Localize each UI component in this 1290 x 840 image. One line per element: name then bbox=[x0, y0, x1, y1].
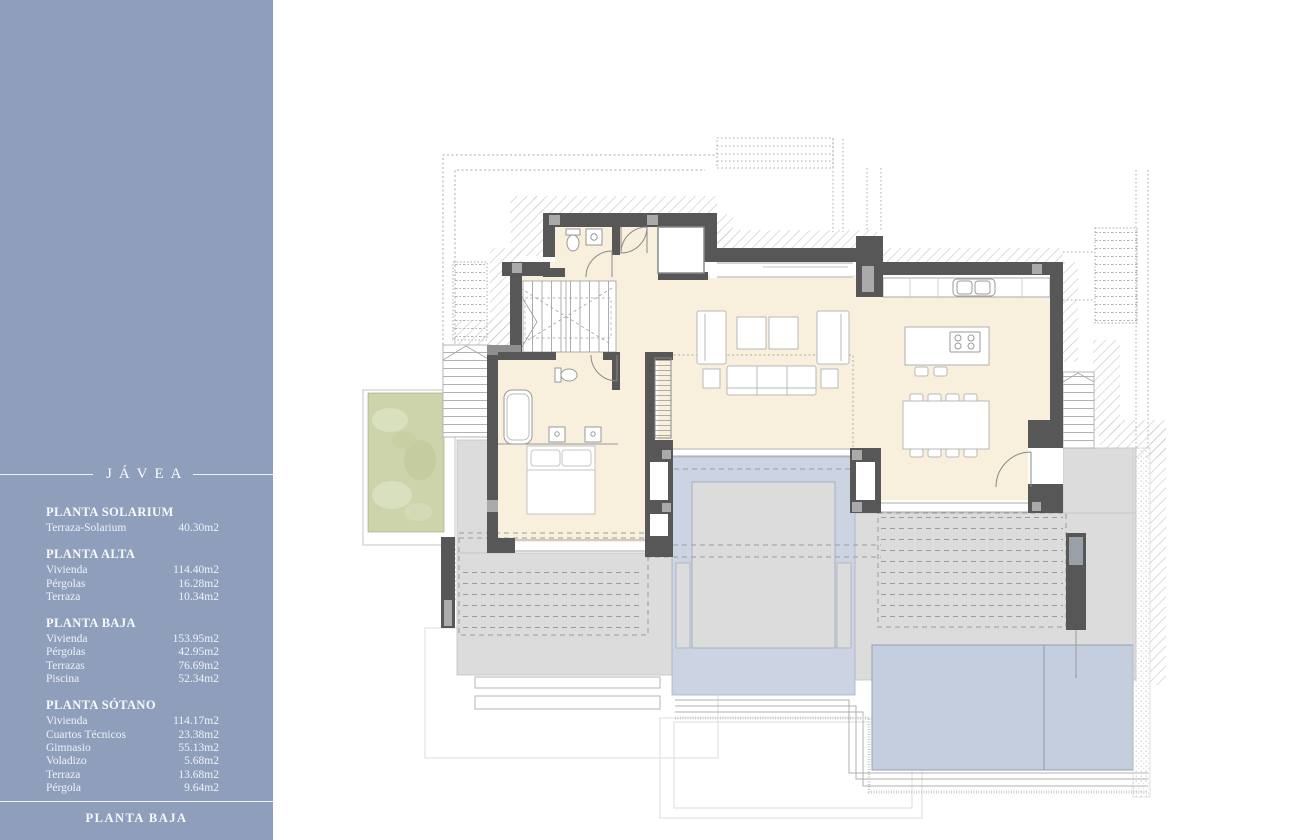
area-row: Terrazas76.69m2 bbox=[46, 660, 219, 673]
area-label: Gimnasio bbox=[46, 742, 91, 755]
area-label: Terraza-Solarium bbox=[46, 522, 126, 535]
stool bbox=[934, 367, 947, 376]
area-label: Vivienda bbox=[46, 564, 87, 577]
area-value: 114.40m2 bbox=[173, 564, 219, 577]
upper-stair-dotted-right bbox=[1095, 228, 1137, 323]
coffee-table bbox=[737, 317, 766, 349]
area-row: Vivienda114.17m2 bbox=[46, 715, 219, 728]
area-value: 16.28m2 bbox=[178, 578, 219, 591]
bed bbox=[527, 446, 595, 514]
stove bbox=[950, 332, 980, 352]
side-table bbox=[821, 369, 838, 388]
dining-set bbox=[903, 394, 989, 457]
area-value: 40.30m2 bbox=[178, 522, 219, 535]
area-row: Terraza13.68m2 bbox=[46, 769, 219, 782]
armchair bbox=[697, 311, 726, 364]
footer-rule bbox=[0, 801, 273, 802]
area-label: Cuartos Técnicos bbox=[46, 729, 126, 742]
pool-deck-strip bbox=[1133, 448, 1150, 797]
section-header: PLANTA ALTA bbox=[46, 547, 219, 562]
area-value: 23.38m2 bbox=[178, 729, 219, 742]
area-value: 153.95m2 bbox=[173, 633, 219, 646]
area-label: Terraza bbox=[46, 591, 80, 604]
terrace-east-upper bbox=[1063, 448, 1136, 513]
area-row: Terraza10.34m2 bbox=[46, 591, 219, 604]
area-value: 10.34m2 bbox=[178, 591, 219, 604]
area-value: 9.64m2 bbox=[184, 782, 219, 795]
water-patio bbox=[672, 457, 855, 695]
area-label: Pérgola bbox=[46, 782, 81, 795]
kitchen-counter bbox=[883, 278, 1050, 297]
area-label: Piscina bbox=[46, 673, 79, 686]
area-section-2: PLANTA BAJAVivienda153.95m2Pérgolas42.95… bbox=[46, 616, 219, 686]
area-value: 42.95m2 bbox=[178, 646, 219, 659]
area-value: 13.68m2 bbox=[178, 769, 219, 782]
side-table bbox=[703, 369, 720, 388]
section-header: PLANTA SÓTANO bbox=[46, 698, 219, 713]
area-value: 76.69m2 bbox=[178, 660, 219, 673]
area-value: 5.68m2 bbox=[184, 755, 219, 768]
sofa bbox=[727, 366, 816, 395]
current-floor-label: PLANTA BAJA bbox=[0, 811, 273, 826]
section-header: PLANTA SOLARIUM bbox=[46, 505, 219, 520]
area-row: Piscina52.34m2 bbox=[46, 673, 219, 686]
armchair bbox=[817, 311, 849, 364]
brochure-page: JÁVEA PLANTA SOLARIUMTerraza-Solarium40.… bbox=[0, 0, 1290, 840]
area-row: Cuartos Técnicos23.38m2 bbox=[46, 729, 219, 742]
area-value: 52.34m2 bbox=[178, 673, 219, 686]
interior-staircase bbox=[516, 281, 616, 352]
garden-planter bbox=[363, 390, 455, 545]
area-row: Terraza-Solarium40.30m2 bbox=[46, 522, 219, 535]
info-sidebar: JÁVEA PLANTA SOLARIUMTerraza-Solarium40.… bbox=[0, 0, 273, 840]
area-row: Vivienda153.95m2 bbox=[46, 633, 219, 646]
coffee-table bbox=[769, 317, 798, 349]
dining-table bbox=[903, 401, 989, 449]
area-label: Pérgolas bbox=[46, 578, 85, 591]
area-row: Pérgolas16.28m2 bbox=[46, 578, 219, 591]
area-label: Terraza bbox=[46, 769, 80, 782]
toilet bbox=[566, 229, 580, 251]
area-label: Pérgolas bbox=[46, 646, 85, 659]
section-header: PLANTA BAJA bbox=[46, 616, 219, 631]
area-label: Voladizo bbox=[46, 755, 87, 768]
area-row: Voladizo5.68m2 bbox=[46, 755, 219, 768]
area-row: Pérgolas42.95m2 bbox=[46, 646, 219, 659]
area-value: 55.13m2 bbox=[178, 742, 219, 755]
area-section-3: PLANTA SÓTANOVivienda114.17m2Cuartos Téc… bbox=[46, 698, 219, 795]
bathtub bbox=[504, 390, 532, 444]
area-section-0: PLANTA SOLARIUMTerraza-Solarium40.30m2 bbox=[46, 505, 219, 535]
east-stair bbox=[1063, 372, 1094, 448]
area-row: Pérgola9.64m2 bbox=[46, 782, 219, 795]
area-value: 114.17m2 bbox=[173, 715, 219, 728]
garden-stair bbox=[443, 345, 490, 437]
terrace-west-strip bbox=[457, 440, 490, 553]
area-schedule: PLANTA SOLARIUMTerraza-Solarium40.30m2PL… bbox=[46, 505, 219, 807]
patio-platform bbox=[692, 482, 835, 648]
toilet bbox=[555, 368, 577, 382]
area-row: Vivienda114.40m2 bbox=[46, 564, 219, 577]
stool bbox=[915, 367, 928, 376]
project-title-row: JÁVEA bbox=[0, 466, 273, 483]
kitchen-sink bbox=[953, 279, 995, 296]
title-rule-right bbox=[193, 474, 274, 475]
area-label: Vivienda bbox=[46, 715, 87, 728]
wc-sink bbox=[586, 229, 602, 245]
title-rule-left bbox=[0, 474, 93, 475]
project-title: JÁVEA bbox=[93, 466, 193, 483]
storage-unit bbox=[658, 227, 704, 273]
area-label: Terrazas bbox=[46, 660, 85, 673]
area-label: Vivienda bbox=[46, 633, 87, 646]
wardrobe bbox=[655, 358, 671, 438]
area-section-1: PLANTA ALTAVivienda114.40m2Pérgolas16.28… bbox=[46, 547, 219, 604]
terrace-steps bbox=[475, 677, 660, 709]
area-row: Gimnasio55.13m2 bbox=[46, 742, 219, 755]
